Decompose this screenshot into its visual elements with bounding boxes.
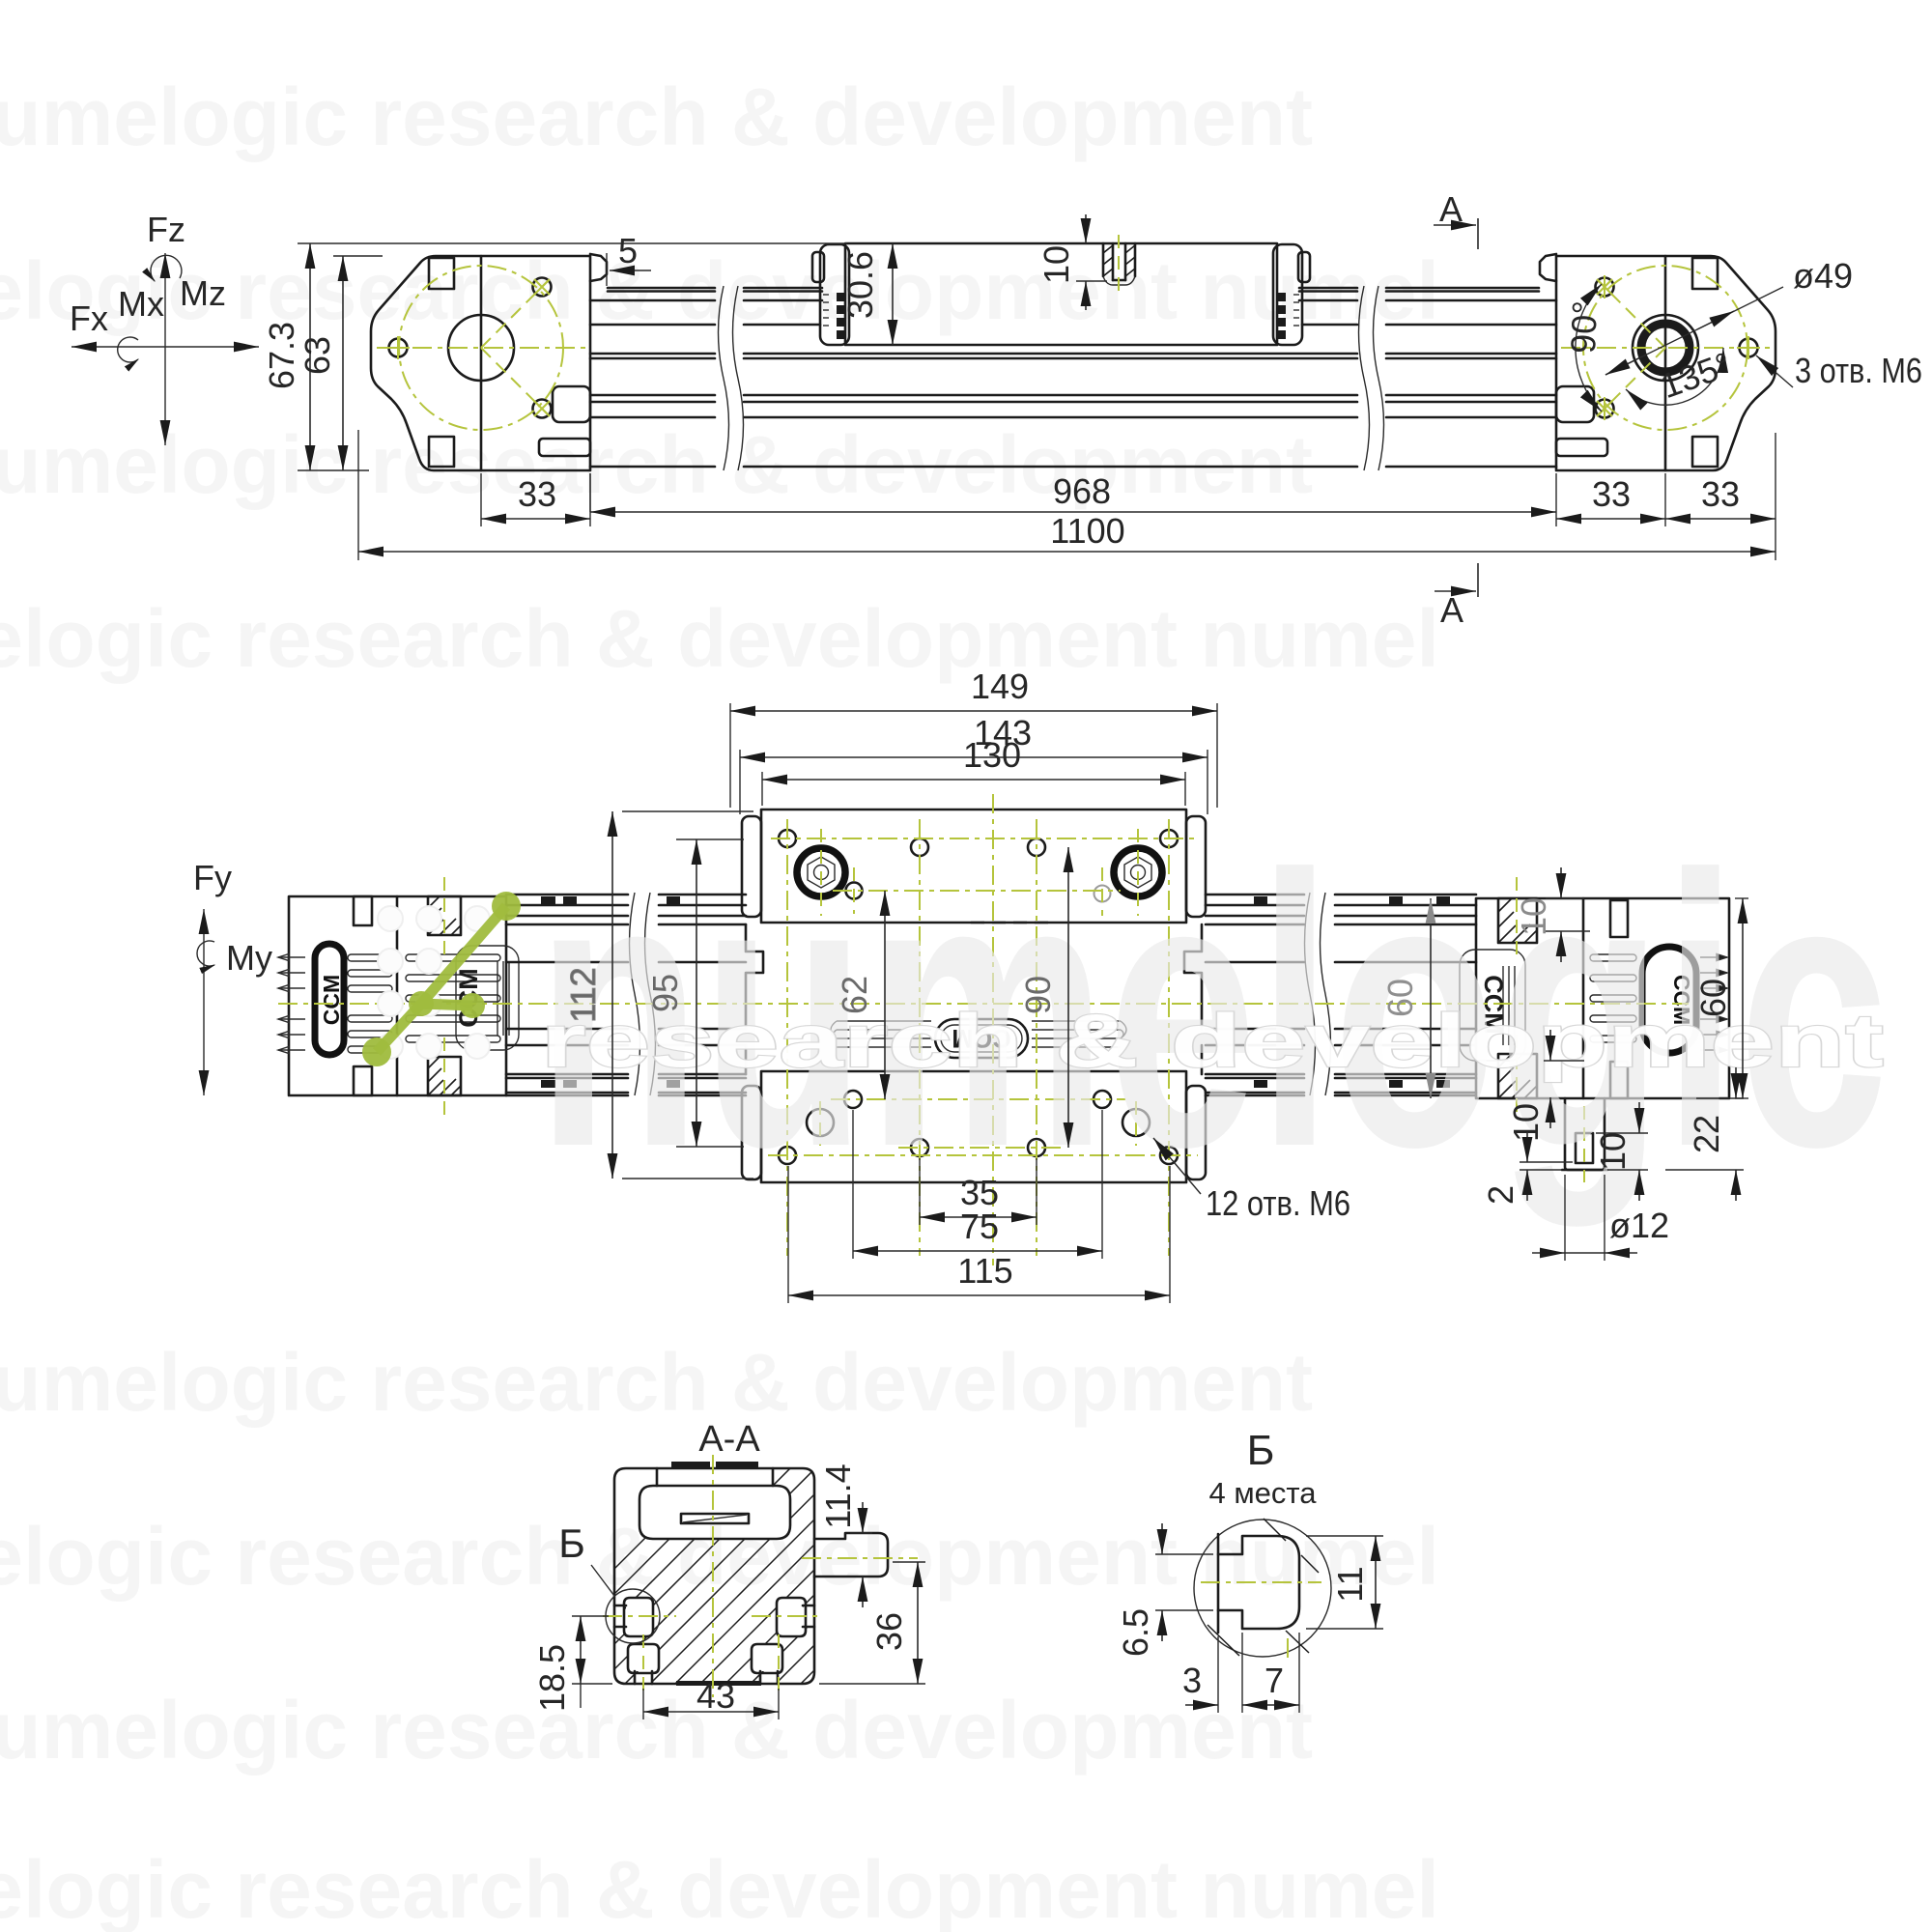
svg-text:75: 75 bbox=[960, 1207, 999, 1246]
svg-text:18.5: 18.5 bbox=[532, 1644, 572, 1712]
svg-text:5: 5 bbox=[618, 231, 638, 270]
svg-text:Mz: Mz bbox=[180, 273, 226, 313]
svg-text:10: 10 bbox=[1037, 245, 1076, 284]
svg-text:7: 7 bbox=[1264, 1661, 1284, 1700]
svg-text:62: 62 bbox=[835, 976, 874, 1014]
svg-text:36: 36 bbox=[869, 1612, 909, 1651]
svg-text:112: 112 bbox=[563, 967, 603, 1022]
svg-text:Mx: Mx bbox=[118, 284, 164, 324]
svg-text:My: My bbox=[226, 938, 272, 978]
svg-text:ø12: ø12 bbox=[1609, 1206, 1669, 1245]
svg-text:numelogic research & developme: numelogic research & development numel bbox=[0, 1844, 1439, 1932]
svg-text:33: 33 bbox=[1701, 474, 1740, 514]
svg-text:3: 3 bbox=[1182, 1661, 1202, 1700]
svg-text:11.4: 11.4 bbox=[818, 1463, 858, 1528]
svg-text:numelogic research & developme: numelogic research & development bbox=[0, 1337, 1313, 1428]
svg-text:968: 968 bbox=[1053, 471, 1111, 511]
svg-text:A-A: A-A bbox=[698, 1419, 760, 1460]
svg-text:6.5: 6.5 bbox=[1116, 1608, 1155, 1657]
svg-text:60: 60 bbox=[1380, 979, 1420, 1017]
svg-text:10: 10 bbox=[1506, 1103, 1546, 1142]
svg-text:90: 90 bbox=[1018, 976, 1058, 1014]
svg-text:Fz: Fz bbox=[147, 210, 185, 249]
svg-text:numelogic research & developme: numelogic research & development bbox=[0, 71, 1313, 162]
svg-text:90°: 90° bbox=[1563, 300, 1605, 355]
svg-text:Fy: Fy bbox=[193, 858, 232, 897]
svg-text:3 отв. М6: 3 отв. М6 bbox=[1795, 351, 1922, 390]
svg-text:33: 33 bbox=[518, 474, 556, 514]
svg-text:Б: Б bbox=[558, 1520, 585, 1566]
svg-text:1100: 1100 bbox=[1050, 511, 1124, 551]
svg-text:43: 43 bbox=[696, 1676, 735, 1716]
svg-text:33: 33 bbox=[1592, 474, 1631, 514]
svg-text:67.3: 67.3 bbox=[262, 322, 301, 389]
svg-text:130: 130 bbox=[963, 735, 1021, 775]
svg-text:4 места: 4 места bbox=[1209, 1476, 1318, 1510]
svg-text:22: 22 bbox=[1687, 1115, 1726, 1153]
svg-text:2: 2 bbox=[1481, 1185, 1520, 1205]
svg-text:115: 115 bbox=[957, 1251, 1012, 1291]
svg-text:research & development: research & development bbox=[541, 998, 1884, 1083]
svg-text:95: 95 bbox=[645, 974, 685, 1012]
svg-text:60: 60 bbox=[1693, 979, 1733, 1017]
svg-text:numelogic research & developme: numelogic research & development bbox=[0, 419, 1313, 510]
svg-text:Б: Б bbox=[1247, 1427, 1275, 1474]
svg-text:numelogic research & developme: numelogic research & development numel bbox=[0, 593, 1439, 684]
svg-text:ø49: ø49 bbox=[1793, 256, 1853, 296]
svg-text:149: 149 bbox=[971, 667, 1029, 706]
svg-text:A: A bbox=[1440, 590, 1463, 630]
svg-text:Fx: Fx bbox=[70, 298, 108, 338]
svg-text:numelogic research & developme: numelogic research & development bbox=[0, 1685, 1313, 1776]
svg-text:11: 11 bbox=[1330, 1566, 1370, 1602]
svg-text:12 отв. М6: 12 отв. М6 bbox=[1206, 1183, 1350, 1223]
svg-text:10: 10 bbox=[1593, 1132, 1633, 1171]
svg-text:63: 63 bbox=[298, 336, 337, 375]
svg-text:CCM: CCM bbox=[319, 975, 344, 1025]
svg-text:30.6: 30.6 bbox=[840, 251, 880, 319]
svg-text:A: A bbox=[1439, 189, 1463, 229]
svg-text:10: 10 bbox=[1514, 897, 1553, 936]
